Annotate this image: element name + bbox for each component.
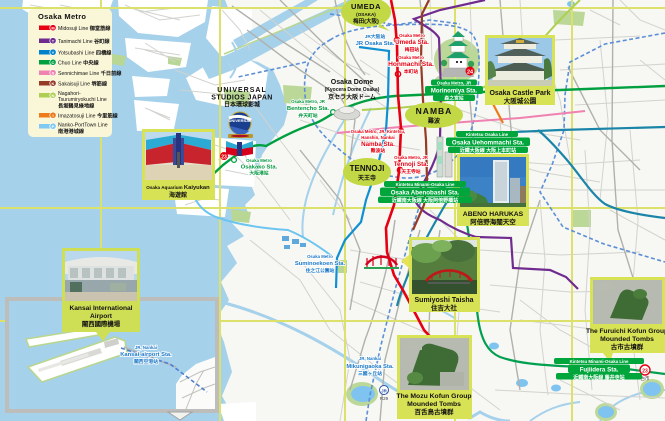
svg-text:UMEDA: UMEDA <box>351 2 381 11</box>
svg-text:N: N <box>52 93 55 98</box>
svg-text:Tennoji Sta.: Tennoji Sta. <box>394 161 429 168</box>
svg-text:南港港城線: 南港港城線 <box>58 127 85 135</box>
svg-text:Hanshin, Nankai: Hanshin, Nankai <box>361 135 394 140</box>
svg-text:Kintetsu Minami-Osaka Line: Kintetsu Minami-Osaka Line <box>570 359 629 364</box>
svg-text:Midosuji Line 御堂筋線: Midosuji Line 御堂筋線 <box>58 24 111 32</box>
svg-text:Sennichimae Line 千日前線: Sennichimae Line 千日前線 <box>58 69 122 77</box>
svg-text:The Mozu Kofun Group: The Mozu Kofun Group <box>396 393 471 400</box>
svg-text:Bentencho Sta.: Bentencho Sta. <box>287 106 330 112</box>
svg-text:Osaka Castle Park: Osaka Castle Park <box>489 90 550 97</box>
svg-text:弁天町站: 弁天町站 <box>298 112 317 119</box>
svg-text:Mounded Tombs: Mounded Tombs <box>407 401 461 408</box>
svg-text:Osaka Metro, JR: Osaka Metro, JR <box>394 155 429 160</box>
svg-text:Kintetsu Osaka Line: Kintetsu Osaka Line <box>466 132 509 137</box>
svg-text:Yotsubashi Line 四橋線: Yotsubashi Line 四橋線 <box>58 49 112 57</box>
svg-text:天王寺站: 天王寺站 <box>401 168 420 175</box>
svg-text:Umeda Sta.: Umeda Sta. <box>395 39 429 46</box>
svg-text:Honmachi Sta.: Honmachi Sta. <box>388 61 434 68</box>
svg-text:C: C <box>52 60 55 65</box>
svg-text:UNIVERSAL: UNIVERSAL <box>217 87 266 94</box>
svg-text:NAMBA: NAMBA <box>416 106 453 116</box>
svg-text:日本環球影城: 日本環球影城 <box>224 101 260 109</box>
svg-text:森之宮站: 森之宮站 <box>444 95 463 102</box>
svg-text:Osaka Metro, JR: Osaka Metro, JR <box>437 80 472 85</box>
svg-text:Fujiidera Sta.: Fujiidera Sta. <box>580 366 619 373</box>
svg-text:JR Osaka Sta.: JR Osaka Sta. <box>356 41 395 47</box>
svg-text:難波: 難波 <box>428 117 441 125</box>
svg-text:P: P <box>52 124 55 129</box>
svg-text:Kansai International: Kansai International <box>69 305 132 312</box>
svg-text:百舌鳥古墳群: 百舌鳥古墳群 <box>415 407 455 416</box>
svg-text:JR大阪站: JR大阪站 <box>365 33 386 40</box>
svg-text:長堀鶴見綠地線: 長堀鶴見綠地線 <box>58 102 95 110</box>
svg-text:Osaka Uehommachi Sta.: Osaka Uehommachi Sta. <box>452 139 524 146</box>
svg-text:JR, Nankai: JR, Nankai <box>135 345 157 350</box>
svg-text:Osaka Metro: Osaka Metro <box>399 33 425 38</box>
svg-text:UNIVERSAL: UNIVERSAL <box>228 118 252 123</box>
svg-text:Suminoekoen Sta.: Suminoekoen Sta. <box>295 261 346 267</box>
svg-text:23: 23 <box>642 369 648 375</box>
svg-text:I: I <box>52 113 53 118</box>
svg-text:STUDIOS JAPAN: STUDIOS JAPAN <box>211 95 272 102</box>
svg-text:Osaka Abenobashi Sta.: Osaka Abenobashi Sta. <box>391 189 460 196</box>
svg-text:S: S <box>52 71 55 76</box>
svg-text:京セラ大阪ドーム: 京セラ大阪ドーム <box>328 93 376 101</box>
svg-text:The Furuichi Kofun Group: The Furuichi Kofun Group <box>586 328 665 335</box>
svg-text:近鐵南大阪線 藤井寺站: 近鐵南大阪線 藤井寺站 <box>573 374 624 381</box>
svg-text:大阪城公園: 大阪城公園 <box>504 96 537 105</box>
svg-text:難波站: 難波站 <box>371 147 386 154</box>
svg-text:K: K <box>52 81 55 86</box>
svg-text:阿倍野海闊天空: 阿倍野海闊天空 <box>470 217 516 226</box>
svg-text:R29: R29 <box>380 396 389 401</box>
svg-text:Osakako Sta.: Osakako Sta. <box>241 165 278 171</box>
svg-text:海遊館: 海遊館 <box>169 191 187 199</box>
svg-text:關西空港站: 關西空港站 <box>134 358 158 365</box>
svg-text:Kintetsu Minami-Osaka Line: Kintetsu Minami-Osaka Line <box>396 182 455 187</box>
svg-text:TENNOJI: TENNOJI <box>350 164 385 173</box>
svg-text:Imazatosuji Line 今里筋線: Imazatosuji Line 今里筋線 <box>58 112 119 120</box>
svg-text:JR, Nankai: JR, Nankai <box>359 356 381 361</box>
svg-text:Osaka Metro: Osaka Metro <box>307 254 333 259</box>
svg-text:住吉大社: 住吉大社 <box>431 303 458 312</box>
svg-text:24: 24 <box>467 69 474 75</box>
svg-text:三國ヶ丘站: 三國ヶ丘站 <box>358 370 382 377</box>
svg-text:大阪港站: 大阪港站 <box>249 170 268 177</box>
svg-text:Tanimachi Line 谷町線: Tanimachi Line 谷町線 <box>58 37 110 45</box>
svg-text:Osaka Metro: Osaka Metro <box>246 158 272 163</box>
svg-text:Osaka Metro, JR, Kintetsu,: Osaka Metro, JR, Kintetsu, <box>351 129 405 134</box>
svg-text:Osaka Metro: Osaka Metro <box>398 55 424 60</box>
svg-text:Sumiyoshi Taisha: Sumiyoshi Taisha <box>415 297 474 304</box>
svg-text:ABENO HARUKAS: ABENO HARUKAS <box>463 211 524 218</box>
svg-text:Morinomiya Sta.: Morinomiya Sta. <box>431 88 478 94</box>
svg-text:Y: Y <box>52 50 55 55</box>
svg-text:天王寺: 天王寺 <box>358 174 376 182</box>
svg-text:Mikunigaoka Sta.: Mikunigaoka Sta. <box>346 364 394 370</box>
svg-text:Osaka Dome: Osaka Dome <box>331 79 374 86</box>
svg-text:Osaka Metro: Osaka Metro <box>38 12 86 21</box>
svg-text:(OSAKA): (OSAKA) <box>356 12 376 17</box>
svg-text:梅田站: 梅田站 <box>405 46 420 53</box>
svg-text:23: 23 <box>221 155 227 161</box>
svg-text:Namba Sta.: Namba Sta. <box>361 141 395 148</box>
svg-text:Tsurumiryokuchi Line: Tsurumiryokuchi Line <box>58 97 107 103</box>
svg-text:梅田(大阪): 梅田(大阪) <box>353 17 379 25</box>
svg-text:Mounded Tombs: Mounded Tombs <box>600 336 654 343</box>
svg-text:近鐵大阪線 大阪上本町站: 近鐵大阪線 大阪上本町站 <box>460 147 516 154</box>
svg-text:Airport: Airport <box>90 313 113 320</box>
svg-text:Kansai-airport Sta.: Kansai-airport Sta. <box>120 352 172 358</box>
svg-text:本町站: 本町站 <box>404 68 419 75</box>
svg-text:JR: JR <box>381 389 388 394</box>
svg-text:關西國際機場: 關西國際機場 <box>82 319 121 328</box>
svg-text:Osaka Metro, JR: Osaka Metro, JR <box>291 99 326 104</box>
svg-text:Nanko-PortTown Line: Nanko-PortTown Line <box>58 123 108 129</box>
svg-text:Sakaisuji Line 堺筋線: Sakaisuji Line 堺筋線 <box>58 80 108 88</box>
svg-text:近鐵南大阪線 大阪阿倍野橋站: 近鐵南大阪線 大阪阿倍野橋站 <box>392 197 458 204</box>
svg-text:住之江公園站: 住之江公園站 <box>306 267 335 274</box>
svg-text:古市古墳群: 古市古墳群 <box>611 342 644 351</box>
svg-text:Chuo Line 中央線: Chuo Line 中央線 <box>58 59 99 67</box>
svg-text:(Kyocera Dome Osaka): (Kyocera Dome Osaka) <box>325 87 380 93</box>
